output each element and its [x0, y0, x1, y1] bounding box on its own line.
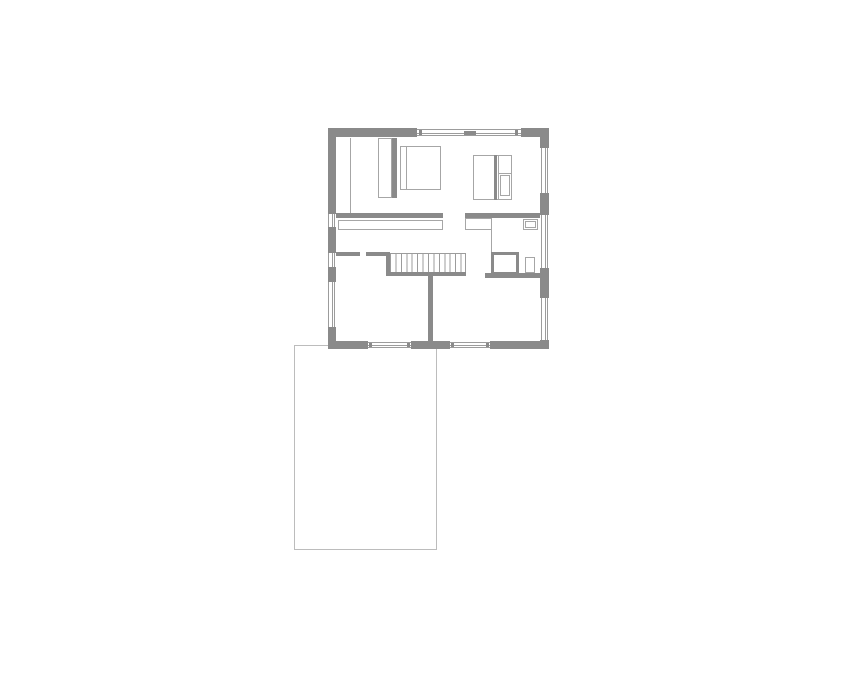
wall-lower-rooms-divider: [428, 276, 433, 341]
window-right-1: [541, 148, 548, 193]
window-marker: [464, 131, 476, 135]
built-in-unit-line-v: [498, 155, 499, 200]
closet-strip: [338, 220, 443, 230]
toilet: [525, 257, 535, 273]
wall-bottom-segment-2: [411, 341, 450, 349]
floor-plan-canvas: [0, 0, 845, 684]
wall-right-mid-2: [540, 268, 549, 298]
wardrobe-side-bar: [392, 138, 397, 198]
bath-partition-line: [491, 230, 492, 252]
wall-right-mid-1: [540, 193, 549, 215]
wall-bedroom-south-a: [336, 213, 443, 218]
wall-hall-a: [336, 252, 360, 256]
wardrobe-panel: [378, 138, 392, 198]
wall-right-upper: [540, 137, 549, 148]
window-cap: [451, 343, 454, 347]
wall-top-left-segment: [328, 128, 417, 137]
wall-bottom-segment-1: [328, 341, 368, 349]
window-cap: [369, 343, 372, 347]
built-in-unit-line-h: [498, 173, 511, 174]
window-right-3: [541, 298, 548, 340]
window-cap: [515, 130, 518, 135]
window-left-3: [328, 282, 335, 327]
window-bottom-2: [450, 342, 490, 348]
vanity-strip: [465, 218, 492, 230]
wall-top-right-corner: [521, 128, 549, 137]
window-left-1: [328, 214, 335, 227]
wall-left-mid-1: [328, 227, 336, 253]
shower: [491, 252, 519, 275]
built-in-unit-divider-bar: [494, 155, 497, 200]
wall-bottom-segment-3: [490, 341, 549, 349]
window-bottom-1: [368, 342, 411, 348]
built-in-unit-inner-box: [500, 175, 510, 196]
staircase-treads: [390, 253, 466, 272]
wall-left-mid-2: [328, 267, 336, 282]
sink-basin: [525, 221, 536, 228]
wall-left-upper: [328, 128, 336, 214]
terrace-outline: [294, 345, 437, 550]
window-cap: [407, 343, 410, 347]
window-cap: [419, 130, 422, 135]
window-cap: [486, 343, 489, 347]
window-left-2: [328, 253, 335, 267]
window-right-2: [541, 215, 548, 268]
closet-front-line: [350, 138, 351, 213]
stair-wall-south: [386, 272, 466, 276]
bed-headboard-line: [406, 147, 407, 189]
